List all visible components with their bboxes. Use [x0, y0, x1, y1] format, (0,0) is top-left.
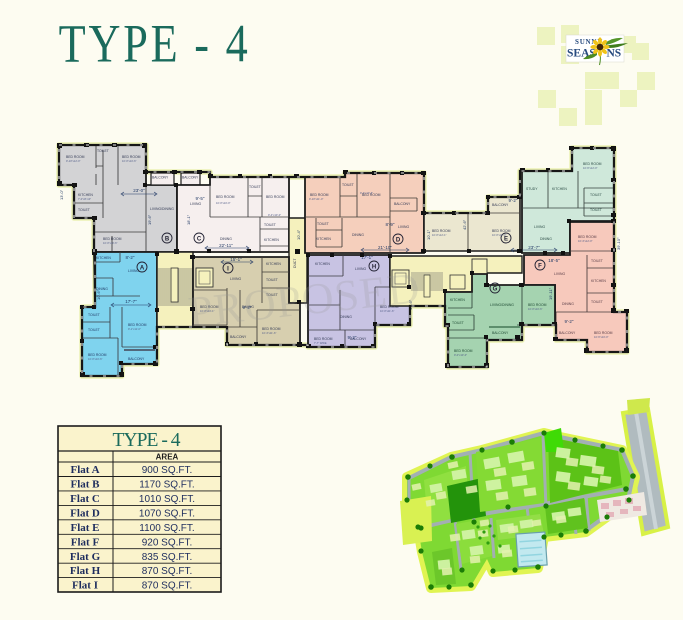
svg-text:Flat A: Flat A [70, 464, 99, 476]
svg-text:9'-2": 9'-2" [348, 335, 357, 340]
svg-text:TOILET: TOILET [249, 185, 261, 189]
svg-text:TOILET: TOILET [342, 183, 354, 187]
svg-text:BED ROOM: BED ROOM [578, 235, 597, 239]
svg-text:KITCHEN: KITCHEN [78, 193, 93, 197]
svg-text:TYPE - 4: TYPE - 4 [113, 430, 181, 451]
svg-text:23'-0": 23'-0" [133, 188, 145, 193]
svg-text:9'-2": 9'-2" [509, 198, 518, 203]
svg-text:BED ROOM: BED ROOM [583, 162, 602, 166]
svg-text:BED ROOM: BED ROOM [454, 349, 473, 353]
svg-text:870 SQ.FT.: 870 SQ.FT. [142, 581, 193, 592]
svg-text:BALCONY: BALCONY [559, 331, 576, 335]
svg-text:BED ROOM: BED ROOM [103, 237, 122, 241]
svg-text:9'-1"x11'-0": 9'-1"x11'-0" [128, 327, 141, 331]
svg-text:Flat G: Flat G [70, 551, 101, 563]
svg-text:DINING: DINING [562, 302, 574, 306]
svg-text:TOILET: TOILET [88, 328, 100, 332]
svg-text:10'-6"x12'-0": 10'-6"x12'-0" [583, 166, 598, 170]
svg-text:920 SQ.FT.: 920 SQ.FT. [142, 537, 193, 548]
svg-text:BED ROOM: BED ROOM [432, 229, 451, 233]
svg-text:39'-10": 39'-10" [616, 237, 621, 250]
svg-text:KITCHEN: KITCHEN [450, 298, 465, 302]
svg-text:TOILET: TOILET [590, 208, 602, 212]
svg-text:9'-2": 9'-2" [565, 319, 574, 324]
svg-text:1100 SQ.FT.: 1100 SQ.FT. [139, 523, 194, 534]
svg-text:BED ROOM: BED ROOM [88, 353, 107, 357]
svg-text:TOILET: TOILET [591, 259, 603, 263]
svg-text:DINING: DINING [352, 233, 364, 237]
svg-text:870 SQ.FT.: 870 SQ.FT. [142, 566, 193, 577]
svg-text:18'-5": 18'-5" [548, 258, 560, 263]
svg-text:BED ROOM: BED ROOM [266, 195, 285, 199]
svg-text:9'-4"x10'-6": 9'-4"x10'-6" [360, 191, 373, 195]
svg-text:15'-1": 15'-1" [230, 257, 242, 262]
svg-text:Flat H: Flat H [70, 565, 101, 577]
svg-text:TOILET: TOILET [452, 321, 464, 325]
svg-text:10'-0"x10'-1": 10'-0"x10'-1" [200, 309, 215, 313]
svg-text:BALCONY: BALCONY [182, 176, 199, 180]
svg-text:BED ROOM: BED ROOM [594, 331, 613, 335]
svg-text:10'-0"x11'-0": 10'-0"x11'-0" [492, 233, 506, 237]
svg-text:7'-7" WIDE: 7'-7" WIDE [314, 341, 327, 345]
svg-text:Flat C: Flat C [70, 493, 100, 505]
svg-text:BED ROOM: BED ROOM [528, 303, 547, 307]
svg-text:10'-4"x11'-6": 10'-4"x11'-6" [262, 331, 276, 335]
svg-text:STUDY: STUDY [526, 187, 538, 191]
svg-text:13'-0": 13'-0" [59, 189, 64, 200]
svg-text:10'-0"x10'-0": 10'-0"x10'-0" [216, 201, 231, 205]
svg-text:BED ROOM: BED ROOM [216, 195, 235, 199]
svg-text:C: C [197, 237, 202, 243]
svg-text:KITCHEN: KITCHEN [315, 262, 330, 266]
svg-text:BED ROOM: BED ROOM [492, 229, 511, 233]
svg-text:10'-0"x12'-1": 10'-0"x12'-1" [432, 233, 447, 237]
svg-text:LIVING: LIVING [190, 202, 201, 206]
svg-text:8'-2": 8'-2" [126, 255, 135, 260]
svg-text:B: B [165, 237, 170, 243]
svg-text:9'-10"x11'-0": 9'-10"x11'-0" [309, 197, 323, 201]
svg-text:LIVING: LIVING [230, 277, 241, 281]
svg-text:NS: NS [607, 48, 622, 60]
svg-text:LIVING: LIVING [534, 225, 545, 229]
svg-text:Flat D: Flat D [70, 507, 100, 519]
svg-text:17'-7": 17'-7" [125, 299, 137, 304]
svg-text:TOILET: TOILET [264, 223, 276, 227]
svg-text:BED ROOM: BED ROOM [310, 193, 329, 197]
svg-text:TOILET: TOILET [78, 208, 90, 212]
svg-text:9'-5": 9'-5" [196, 196, 205, 201]
svg-text:LIVING: LIVING [554, 272, 565, 276]
svg-text:AREA: AREA [156, 453, 179, 462]
svg-text:10'-0"x11'-6": 10'-0"x11'-6" [380, 309, 394, 313]
svg-text:KITCHEN: KITCHEN [552, 187, 567, 191]
svg-text:DINING: DINING [220, 237, 232, 241]
svg-text:Flat E: Flat E [70, 522, 99, 534]
svg-text:BED ROOM: BED ROOM [128, 323, 147, 327]
svg-text:21'-10": 21'-10" [378, 245, 392, 250]
svg-text:BED ROOM: BED ROOM [66, 155, 85, 159]
svg-text:D: D [396, 238, 401, 244]
svg-text:18'-1": 18'-1" [186, 214, 191, 225]
svg-text:KITCHEN: KITCHEN [264, 238, 279, 242]
svg-text:DINING: DINING [540, 237, 552, 241]
svg-text:900 SQ.FT.: 900 SQ.FT. [142, 465, 193, 476]
svg-text:KITCHEN: KITCHEN [591, 279, 606, 283]
svg-text:10'-0"x10'-6": 10'-0"x10'-6" [103, 241, 118, 245]
svg-text:9'-4"x10'-0": 9'-4"x10'-0" [268, 213, 281, 217]
svg-text:1170 SQ.FT.: 1170 SQ.FT. [139, 480, 194, 491]
svg-text:19'-6": 19'-6" [147, 214, 152, 225]
svg-text:Flat B: Flat B [70, 479, 100, 491]
svg-text:22'-11": 22'-11" [219, 243, 233, 248]
svg-text:BALCONY: BALCONY [152, 176, 169, 180]
svg-text:TOILET: TOILET [317, 222, 329, 226]
svg-text:7'-0"x8'-10": 7'-0"x8'-10" [78, 197, 91, 201]
svg-text:BALCONY: BALCONY [230, 335, 247, 339]
svg-text:KITCHEN: KITCHEN [266, 262, 281, 266]
svg-text:E: E [504, 237, 508, 243]
svg-text:BALCONY: BALCONY [492, 203, 509, 207]
svg-text:TYPE - 4: TYPE - 4 [59, 13, 251, 73]
svg-text:LIVING: LIVING [398, 225, 409, 229]
svg-text:DUCT: DUCT [293, 259, 297, 268]
svg-text:LIVING/DINING: LIVING/DINING [490, 303, 514, 307]
svg-text:TOILET: TOILET [591, 300, 603, 304]
svg-text:TOILET: TOILET [590, 193, 602, 197]
svg-text:KITCHEN: KITCHEN [96, 256, 111, 260]
svg-text:Flat I: Flat I [72, 580, 98, 592]
svg-text:G: G [493, 287, 498, 293]
svg-text:835 SQ.FT.: 835 SQ.FT. [142, 552, 193, 563]
svg-text:10'-0"x10'-6": 10'-0"x10'-6" [528, 307, 543, 311]
svg-text:BALCONY: BALCONY [492, 331, 509, 335]
svg-text:19'-11": 19'-11" [548, 287, 553, 300]
svg-text:1070 SQ.FT.: 1070 SQ.FT. [139, 508, 195, 519]
svg-text:BALCONY: BALCONY [394, 202, 411, 206]
svg-text:8'-9": 8'-9" [386, 222, 395, 227]
svg-text:BED ROOM: BED ROOM [314, 337, 333, 341]
svg-text:10'-4"x12'-0": 10'-4"x12'-0" [578, 239, 593, 243]
svg-text:Flat F: Flat F [71, 536, 100, 548]
svg-text:10'-4": 10'-4" [296, 229, 301, 240]
svg-text:TOILET: TOILET [97, 149, 109, 153]
svg-text:9'-0"x10'-0": 9'-0"x10'-0" [454, 353, 467, 357]
svg-text:F: F [538, 264, 542, 270]
svg-text:A: A [140, 266, 145, 272]
svg-text:TOILET: TOILET [88, 313, 100, 317]
svg-text:10'-1": 10'-1" [426, 229, 431, 240]
svg-text:9'-10"x12'-0": 9'-10"x12'-0" [66, 159, 81, 163]
svg-text:10'-6"x10'-0": 10'-6"x10'-0" [594, 335, 609, 339]
svg-text:KITCHEN: KITCHEN [316, 237, 331, 241]
svg-text:10'-6": 10'-6" [96, 289, 101, 300]
svg-text:10'-0"x10'-6": 10'-0"x10'-6" [88, 357, 103, 361]
svg-text:10'-0"x10'-6": 10'-0"x10'-6" [122, 159, 137, 163]
svg-text:42'-6": 42'-6" [462, 219, 467, 230]
svg-text:BALCONY: BALCONY [128, 357, 145, 361]
svg-text:LIVING/DINING: LIVING/DINING [150, 207, 174, 211]
svg-text:1010 SQ.FT.: 1010 SQ.FT. [139, 494, 195, 505]
svg-text:BED ROOM: BED ROOM [122, 155, 141, 159]
svg-text:23'-7": 23'-7" [528, 245, 540, 250]
